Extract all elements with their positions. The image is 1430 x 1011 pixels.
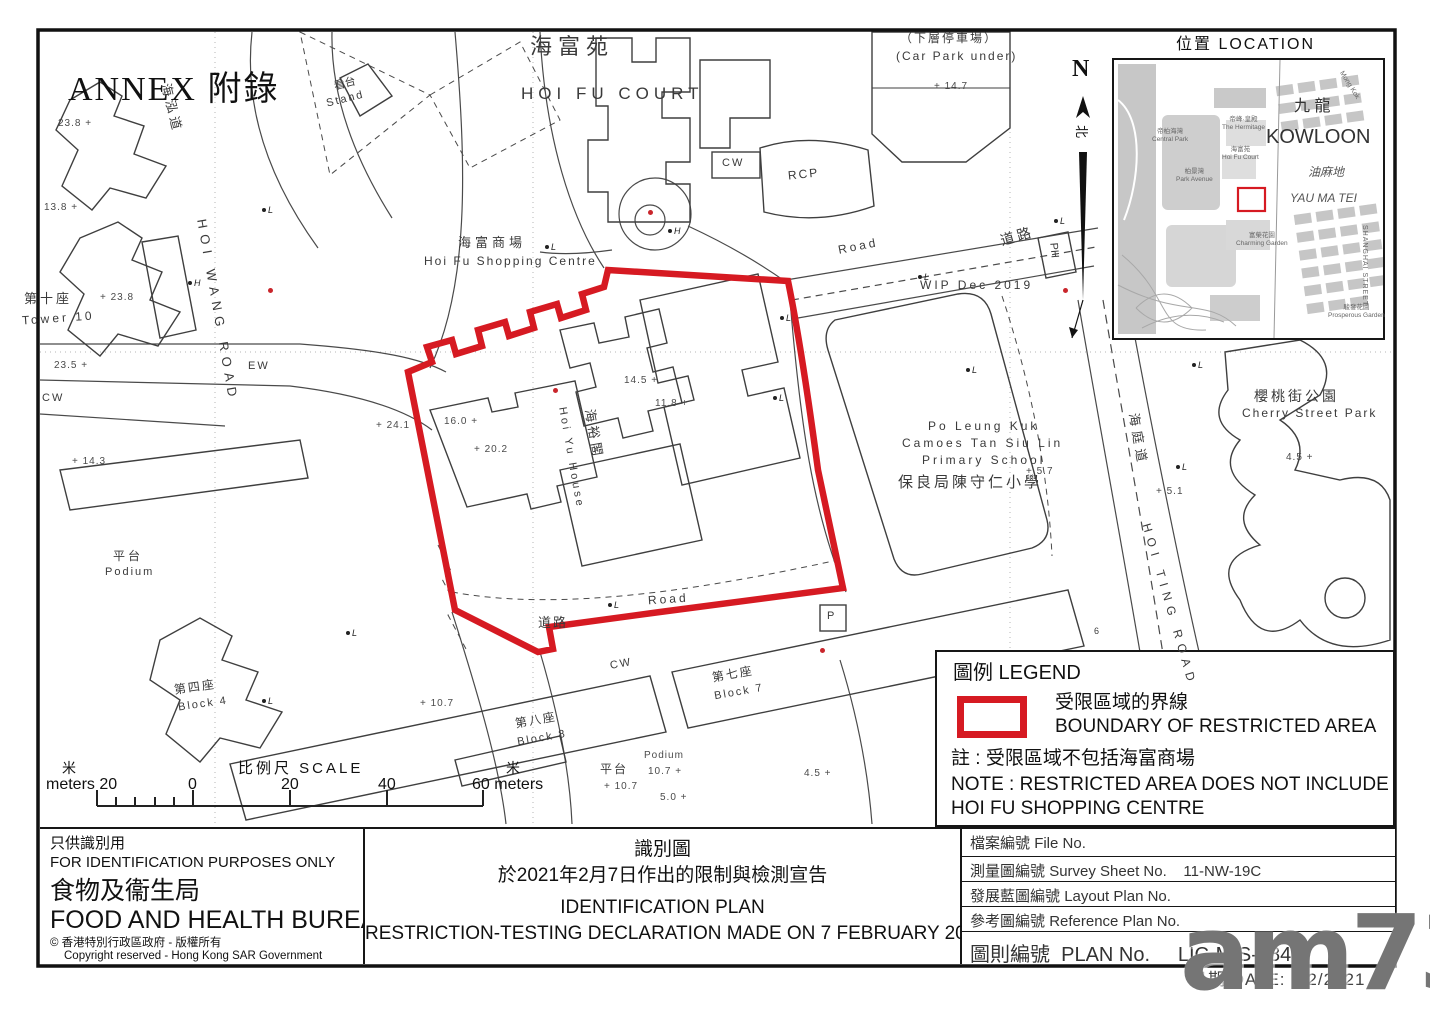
north-arrow-cn: 北 bbox=[1073, 125, 1088, 138]
row-label-cn: 測量圖編號 bbox=[970, 863, 1045, 880]
spot-height: + 5.7 bbox=[1026, 466, 1054, 477]
label-road-en-mid: Road bbox=[648, 592, 690, 609]
table-row-file: 檔案編號 File No. bbox=[962, 829, 1395, 856]
legend-note-en2: HOI FU SHOPPING CENTRE bbox=[951, 798, 1204, 820]
plan-no-en: PLAN No. bbox=[1061, 944, 1150, 966]
row-value: 11-NW-19C bbox=[1183, 863, 1261, 880]
spot-height: 13.8 + bbox=[44, 202, 78, 213]
legend-item-cn: 受限區域的界線 bbox=[1055, 692, 1188, 714]
label-school-line2: Camoes Tan Siu Lin bbox=[902, 437, 1063, 451]
spot-height: + 23.8 bbox=[100, 292, 134, 303]
utility-marker: L bbox=[966, 365, 977, 375]
label-p: P bbox=[827, 610, 834, 623]
utility-marker: L bbox=[1176, 462, 1187, 472]
utility-marker: L bbox=[346, 628, 357, 638]
legend-title: 圖例 LEGEND bbox=[953, 662, 1081, 685]
scale-m-left: 米 bbox=[62, 760, 76, 776]
label-shopping-centre-en: Hoi Fu Shopping Centre bbox=[424, 255, 597, 269]
label-road-cn-mid: 道路 bbox=[538, 616, 568, 631]
label-cw-left: CW bbox=[42, 392, 64, 405]
label-cherry-park-cn: 櫻桃街公園 bbox=[1254, 388, 1339, 404]
plan-title-cn1: 識別圖 bbox=[365, 839, 960, 861]
row-label-en: Survey Sheet No. bbox=[1049, 863, 1167, 880]
spot-height: 4.5 + bbox=[1286, 452, 1314, 463]
inset-park-avenue: 柏景灣 Park Avenue bbox=[1176, 168, 1213, 184]
row-label-en: Layout Plan No. bbox=[1064, 888, 1171, 905]
plan-title-en1: IDENTIFICATION PLAN bbox=[365, 897, 960, 919]
label-cherry-park-en: Cherry Street Park bbox=[1242, 407, 1377, 421]
red-dot bbox=[1063, 288, 1068, 293]
row-label-cn: 發展藍圖編號 bbox=[970, 888, 1060, 905]
label-six: 6 bbox=[1094, 626, 1099, 636]
red-dot bbox=[648, 210, 653, 215]
label-car-park-cn: （下層停車場） bbox=[900, 32, 998, 46]
north-arrow-n: N bbox=[1072, 56, 1089, 84]
spot-height: + 24.1 bbox=[376, 420, 410, 431]
footer-title-box: 識別圖 於2021年2月7日作出的限制與檢測宣告 IDENTIFICATION … bbox=[365, 827, 962, 964]
spot-height: 14.5 + bbox=[624, 375, 658, 386]
spot-height: + 10.7 bbox=[420, 698, 454, 709]
spot-height: 16.0 + bbox=[444, 416, 478, 427]
spot-height: 4.5 + bbox=[804, 768, 832, 779]
spot-height: + 5.1 bbox=[1156, 486, 1184, 497]
label-shopping-centre-cn: 海富商場 bbox=[458, 236, 526, 251]
table-row-survey: 測量圖編號 Survey Sheet No. 11-NW-19C bbox=[962, 856, 1395, 881]
bureau-en: FOOD AND HEALTH BUREAU bbox=[50, 906, 395, 935]
utility-marker: H bbox=[668, 226, 681, 236]
label-school-cn: 保良局陳守仁小學 bbox=[898, 474, 1042, 491]
inset-prosperous-garden: 駿發花園 Prosperous Garden bbox=[1328, 304, 1385, 320]
inset-title: 位置 LOCATION bbox=[1176, 36, 1315, 54]
inset-central-park: 帝柏海灣 Central Park bbox=[1152, 128, 1188, 144]
spot-height: Podium bbox=[644, 750, 684, 761]
spot-height: 23.8 + bbox=[58, 118, 92, 129]
scale-20: 20 bbox=[281, 776, 299, 794]
utility-marker: L bbox=[773, 393, 784, 403]
legend-box: 圖例 LEGEND 受限區域的界線 BOUNDARY OF RESTRICTED… bbox=[935, 650, 1395, 827]
spot-height: + 20.2 bbox=[474, 444, 508, 455]
identification-plan: ANNEX 附錄 海富苑 HOI FU COURT （下層停車場） (Car P… bbox=[0, 0, 1430, 1011]
label-podium1-en: Podium bbox=[105, 566, 154, 579]
spot-height: + 14.3 bbox=[72, 456, 106, 467]
label-hoi-fu-court-cn: 海富苑 bbox=[530, 34, 614, 59]
label-school-line1: Po Leung Kuk bbox=[928, 420, 1039, 434]
utility-marker: L bbox=[1192, 360, 1203, 370]
scale-title: 比例尺 SCALE bbox=[238, 760, 363, 777]
inset-shanghai-street: SHANGHAI STREET bbox=[1360, 225, 1368, 306]
legend-note-en1: NOTE : RESTRICTED AREA DOES NOT INCLUDE bbox=[951, 774, 1389, 796]
legend-note-cn: 註 : 受限區域不包括海富商場 bbox=[951, 748, 1195, 770]
scale-meters-left: meters 20 bbox=[46, 776, 117, 794]
utility-marker: L bbox=[780, 313, 791, 323]
spot-height: + 10.7 bbox=[604, 781, 638, 792]
inset-yaumatei-cn: 油麻地 bbox=[1308, 166, 1344, 180]
red-dot bbox=[820, 648, 825, 653]
label-hoi-fu-court-en: HOI FU COURT bbox=[521, 84, 703, 104]
red-dot bbox=[553, 388, 558, 393]
utility-marker: L bbox=[262, 696, 273, 706]
inset-charming-garden: 富榮花園 Charming Garden bbox=[1236, 232, 1288, 248]
spot-height: + 14.7 bbox=[934, 81, 968, 92]
utility-marker: L bbox=[918, 272, 929, 282]
spot-height: 10.7 + bbox=[648, 766, 682, 777]
use-cn: 只供識別用 bbox=[50, 835, 125, 852]
bureau-cn: 食物及衞生局 bbox=[50, 877, 200, 906]
copyright-en: Copyright reserved - Hong Kong SAR Gover… bbox=[64, 950, 322, 963]
spot-height: 5.0 + bbox=[660, 792, 688, 803]
legend-item-en: BOUNDARY OF RESTRICTED AREA bbox=[1055, 716, 1376, 738]
label-car-park-en: (Car Park under) bbox=[896, 50, 1017, 64]
spot-height: 11.8 + bbox=[655, 398, 688, 409]
inset-kowloon-en: KOWLOON bbox=[1266, 126, 1370, 149]
restricted-area-boundary bbox=[408, 270, 843, 652]
label-podium1-cn: 平台 bbox=[113, 550, 143, 564]
plan-no-cn: 圖則編號 bbox=[970, 944, 1050, 966]
plan-title-cn2: 於2021年2月7日作出的限制與檢測宣告 bbox=[365, 865, 960, 887]
scale-m-right: 米 bbox=[506, 760, 520, 776]
scale-0: 0 bbox=[188, 776, 197, 794]
label-cw-box: CW bbox=[722, 157, 744, 170]
inset-kowloon-cn: 九 龍 bbox=[1294, 98, 1330, 116]
label-podium2-cn: 平台 bbox=[600, 763, 628, 777]
label-ew: EW bbox=[248, 360, 270, 373]
legend-boundary-swatch bbox=[957, 696, 1027, 738]
label-wip: WIP Dec 2019 bbox=[920, 279, 1033, 293]
utility-marker: L bbox=[545, 242, 556, 252]
row-label-cn: 參考圖編號 bbox=[970, 913, 1045, 930]
row-label-en: Reference Plan No. bbox=[1049, 913, 1180, 930]
scale-40: 40 bbox=[378, 776, 396, 794]
red-dot bbox=[268, 288, 273, 293]
use-en: FOR IDENTIFICATION PURPOSES ONLY bbox=[50, 854, 335, 871]
label-tower10-cn: 第十座 bbox=[24, 292, 72, 307]
inset-yaumatei-en: YAU MA TEI bbox=[1290, 192, 1357, 206]
utility-marker: L bbox=[262, 205, 273, 215]
row-label-en: File No. bbox=[1034, 835, 1086, 852]
copyright-cn: © 香港特別行政區政府 - 版權所有 bbox=[50, 937, 221, 950]
label-ph: PH bbox=[1047, 242, 1061, 258]
spot-height: 23.5 + bbox=[54, 360, 88, 371]
scale-60-right: 60 meters bbox=[472, 776, 543, 794]
utility-marker: H bbox=[188, 278, 201, 288]
inset-hermitage: 帝峰·皇殿 The Hermitage bbox=[1222, 116, 1265, 132]
inset-hoi-fu-court: 海富苑 Hoi Fu Court bbox=[1222, 146, 1259, 162]
utility-marker: L bbox=[608, 600, 619, 610]
utility-marker: L bbox=[1054, 216, 1065, 226]
row-label-cn: 檔案編號 bbox=[970, 835, 1030, 852]
footer-left-box: 只供識別用 FOR IDENTIFICATION PURPOSES ONLY 食… bbox=[40, 827, 365, 964]
plan-title-en2: RESTRICTION-TESTING DECLARATION MADE ON … bbox=[365, 923, 960, 945]
am730-watermark: am730 bbox=[1180, 892, 1430, 1011]
